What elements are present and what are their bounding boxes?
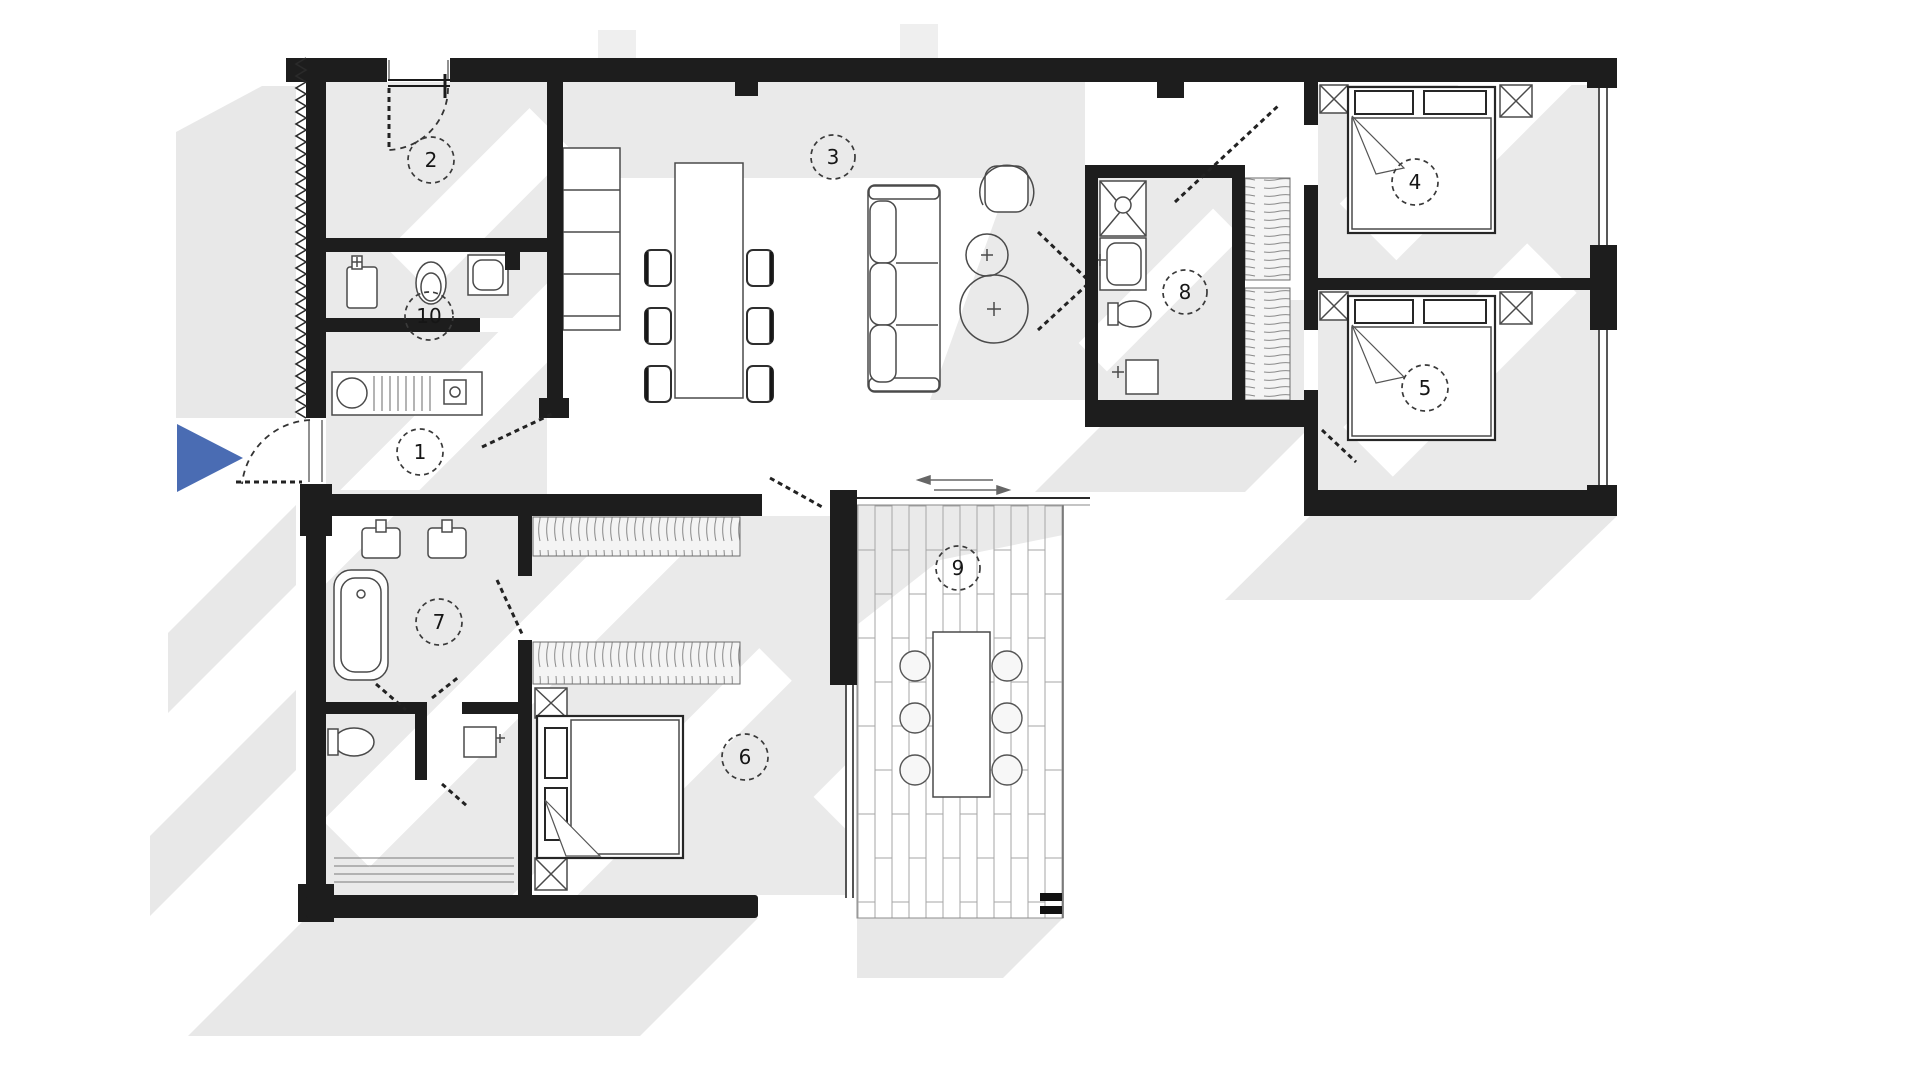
floor-plan-canvas: 1 2 3 4 5 6 7 8 [0, 0, 1920, 1080]
svg-text:5: 5 [1419, 376, 1432, 400]
faucet-icon [442, 520, 452, 532]
wardrobe [1245, 178, 1290, 280]
sofa [868, 185, 940, 392]
armchair [980, 165, 1034, 212]
sink [347, 267, 377, 308]
svg-text:8: 8 [1179, 280, 1192, 304]
deck-step-mark [1040, 906, 1062, 914]
svg-text:3: 3 [827, 145, 840, 169]
pillow [545, 728, 567, 778]
pillow [1355, 91, 1413, 114]
floor-living-top-shade [563, 82, 1085, 178]
svg-text:7: 7 [433, 610, 446, 634]
svg-text:1: 1 [414, 440, 427, 464]
small-sink [464, 727, 496, 757]
deck-step-mark [1040, 893, 1062, 901]
door-leaf [770, 478, 824, 508]
door-swing-entrance [242, 420, 310, 484]
wardrobe [1245, 288, 1290, 400]
washing-machine [468, 255, 508, 295]
svg-text:2: 2 [425, 148, 438, 172]
entrance-arrow-icon [177, 424, 243, 492]
svg-text:6: 6 [739, 745, 752, 769]
svg-text:10: 10 [416, 304, 441, 328]
wardrobe [533, 642, 740, 684]
cistern [1108, 303, 1118, 325]
svg-text:9: 9 [952, 556, 965, 580]
floor-plan-page: 1 2 3 4 5 6 7 8 [0, 0, 1920, 1080]
cistern [328, 729, 338, 755]
outdoor-table [933, 632, 990, 797]
dining-table [675, 163, 743, 398]
washing-machine [1126, 360, 1158, 394]
slide-arrows-icon [918, 476, 1009, 494]
pillow [1424, 91, 1486, 114]
insulation-zigzag [296, 58, 306, 418]
toilet [334, 728, 374, 756]
pillow [1355, 300, 1413, 323]
toilet [1115, 301, 1151, 327]
pillow [1424, 300, 1486, 323]
svg-text:4: 4 [1409, 170, 1422, 194]
wardrobe [533, 517, 740, 556]
faucet-icon [376, 520, 386, 532]
kitchen-counter [563, 148, 620, 330]
hall-console [332, 372, 482, 415]
drain-icon [1115, 197, 1131, 213]
glass-wall [846, 685, 853, 898]
toilet [416, 262, 446, 304]
